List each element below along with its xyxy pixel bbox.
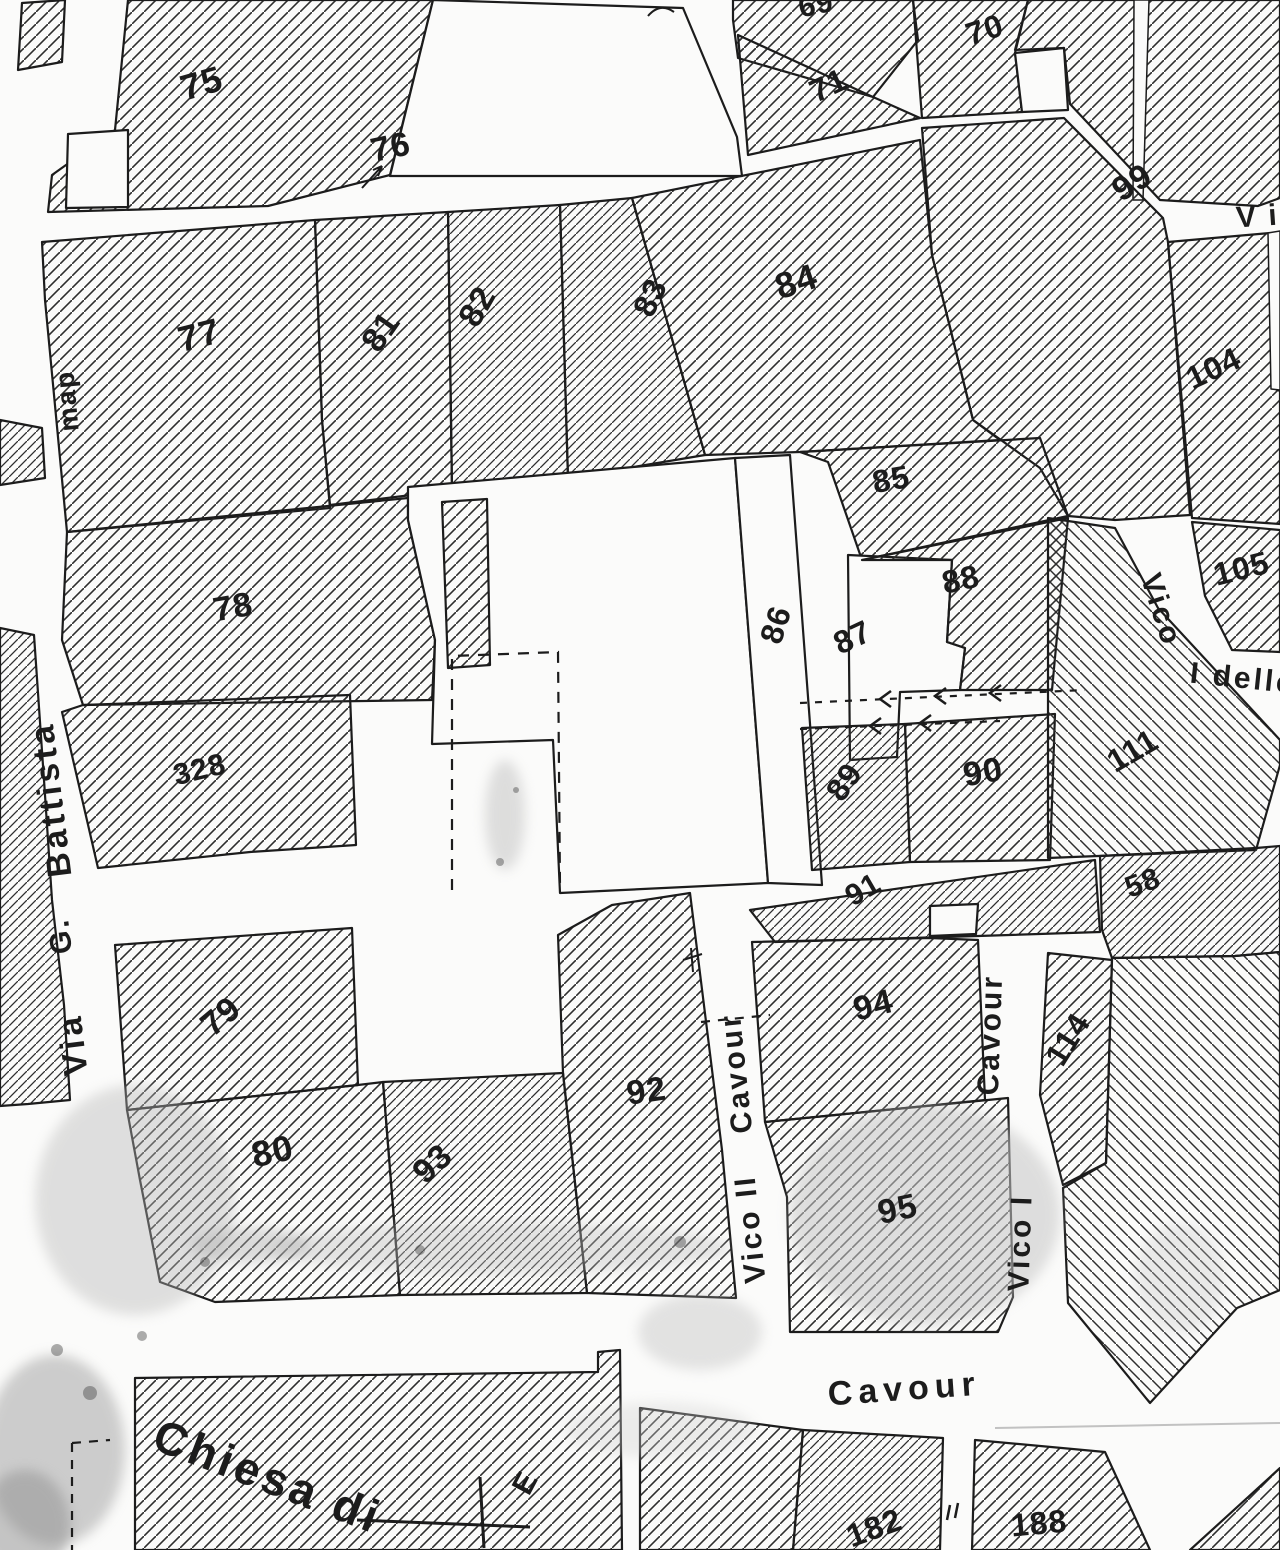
faint-street-edge — [995, 1423, 1280, 1428]
parcel-label-88: 88 — [939, 558, 983, 601]
map-canvas: 6970717576777879808182838485868788899091… — [0, 0, 1280, 1550]
street-label-via-cut-top-right: V i — [1235, 199, 1280, 235]
parcel-label-95: 95 — [874, 1187, 921, 1232]
scan-smudge — [270, 1222, 730, 1274]
street-label-via-g-battista: G. — [42, 916, 79, 955]
scan-speck — [674, 1236, 686, 1248]
scan-speck — [496, 858, 504, 866]
scan-speck — [415, 1245, 425, 1255]
street-label-via-g-battista: Via — [50, 1011, 95, 1078]
boundary-tick-mark — [947, 1503, 958, 1520]
white-notch-75 — [66, 130, 128, 208]
scan-speck — [513, 787, 519, 793]
scanned-cadastral-map-page: 6970717576777879808182838485868788899091… — [0, 0, 1280, 1550]
parcel-label-78: 78 — [210, 585, 256, 629]
scan-smudge — [35, 1085, 235, 1315]
street-label-vico-i-cavour: Cavour — [972, 973, 1009, 1095]
parcel-77 — [42, 220, 330, 532]
scan-smudge — [638, 1294, 762, 1370]
parcel-label-90: 90 — [960, 750, 1006, 794]
parcel-label-85: 85 — [869, 458, 912, 500]
parcel-label-80: 80 — [248, 1126, 298, 1175]
scan-speck — [51, 1344, 63, 1356]
street-label-cavour: Cavour — [827, 1365, 982, 1414]
parcel-114 — [1040, 953, 1112, 1185]
parcel-label-188: 188 — [1009, 1503, 1068, 1544]
scan-smudge — [485, 760, 525, 870]
street-label-vico-ii-cavour: Cavour — [714, 1011, 760, 1135]
street-label-vico-ii-cavour: Vico II — [728, 1173, 772, 1285]
street-label-partial-label-left-margin: map — [49, 369, 84, 433]
parcel-label-92: 92 — [624, 1070, 669, 1113]
white-notch-70 — [1015, 48, 1068, 112]
parcel-bottom-right-corner — [1190, 1468, 1280, 1550]
scan-smudge — [565, 1402, 755, 1458]
parcel-west-fragment — [0, 420, 45, 485]
scan-smudge — [190, 1227, 310, 1263]
white-square-91 — [930, 904, 978, 936]
parcel-58 — [1100, 846, 1280, 958]
parcel-94 — [752, 938, 985, 1122]
parcel-89 — [802, 724, 910, 870]
scan-speck — [137, 1331, 147, 1341]
parcel-76 — [390, 0, 742, 176]
parcel-82 — [448, 205, 568, 488]
scan-smudge — [1135, 1223, 1225, 1333]
parcel-fragment-topleft — [18, 0, 65, 70]
parcel-78-annex — [442, 499, 490, 668]
scan-speck — [200, 1257, 210, 1267]
street-label-vico-i-cavour: Vico I — [1002, 1193, 1038, 1292]
scan-speck — [83, 1386, 97, 1400]
parcel-label-76: 76 — [367, 125, 414, 170]
